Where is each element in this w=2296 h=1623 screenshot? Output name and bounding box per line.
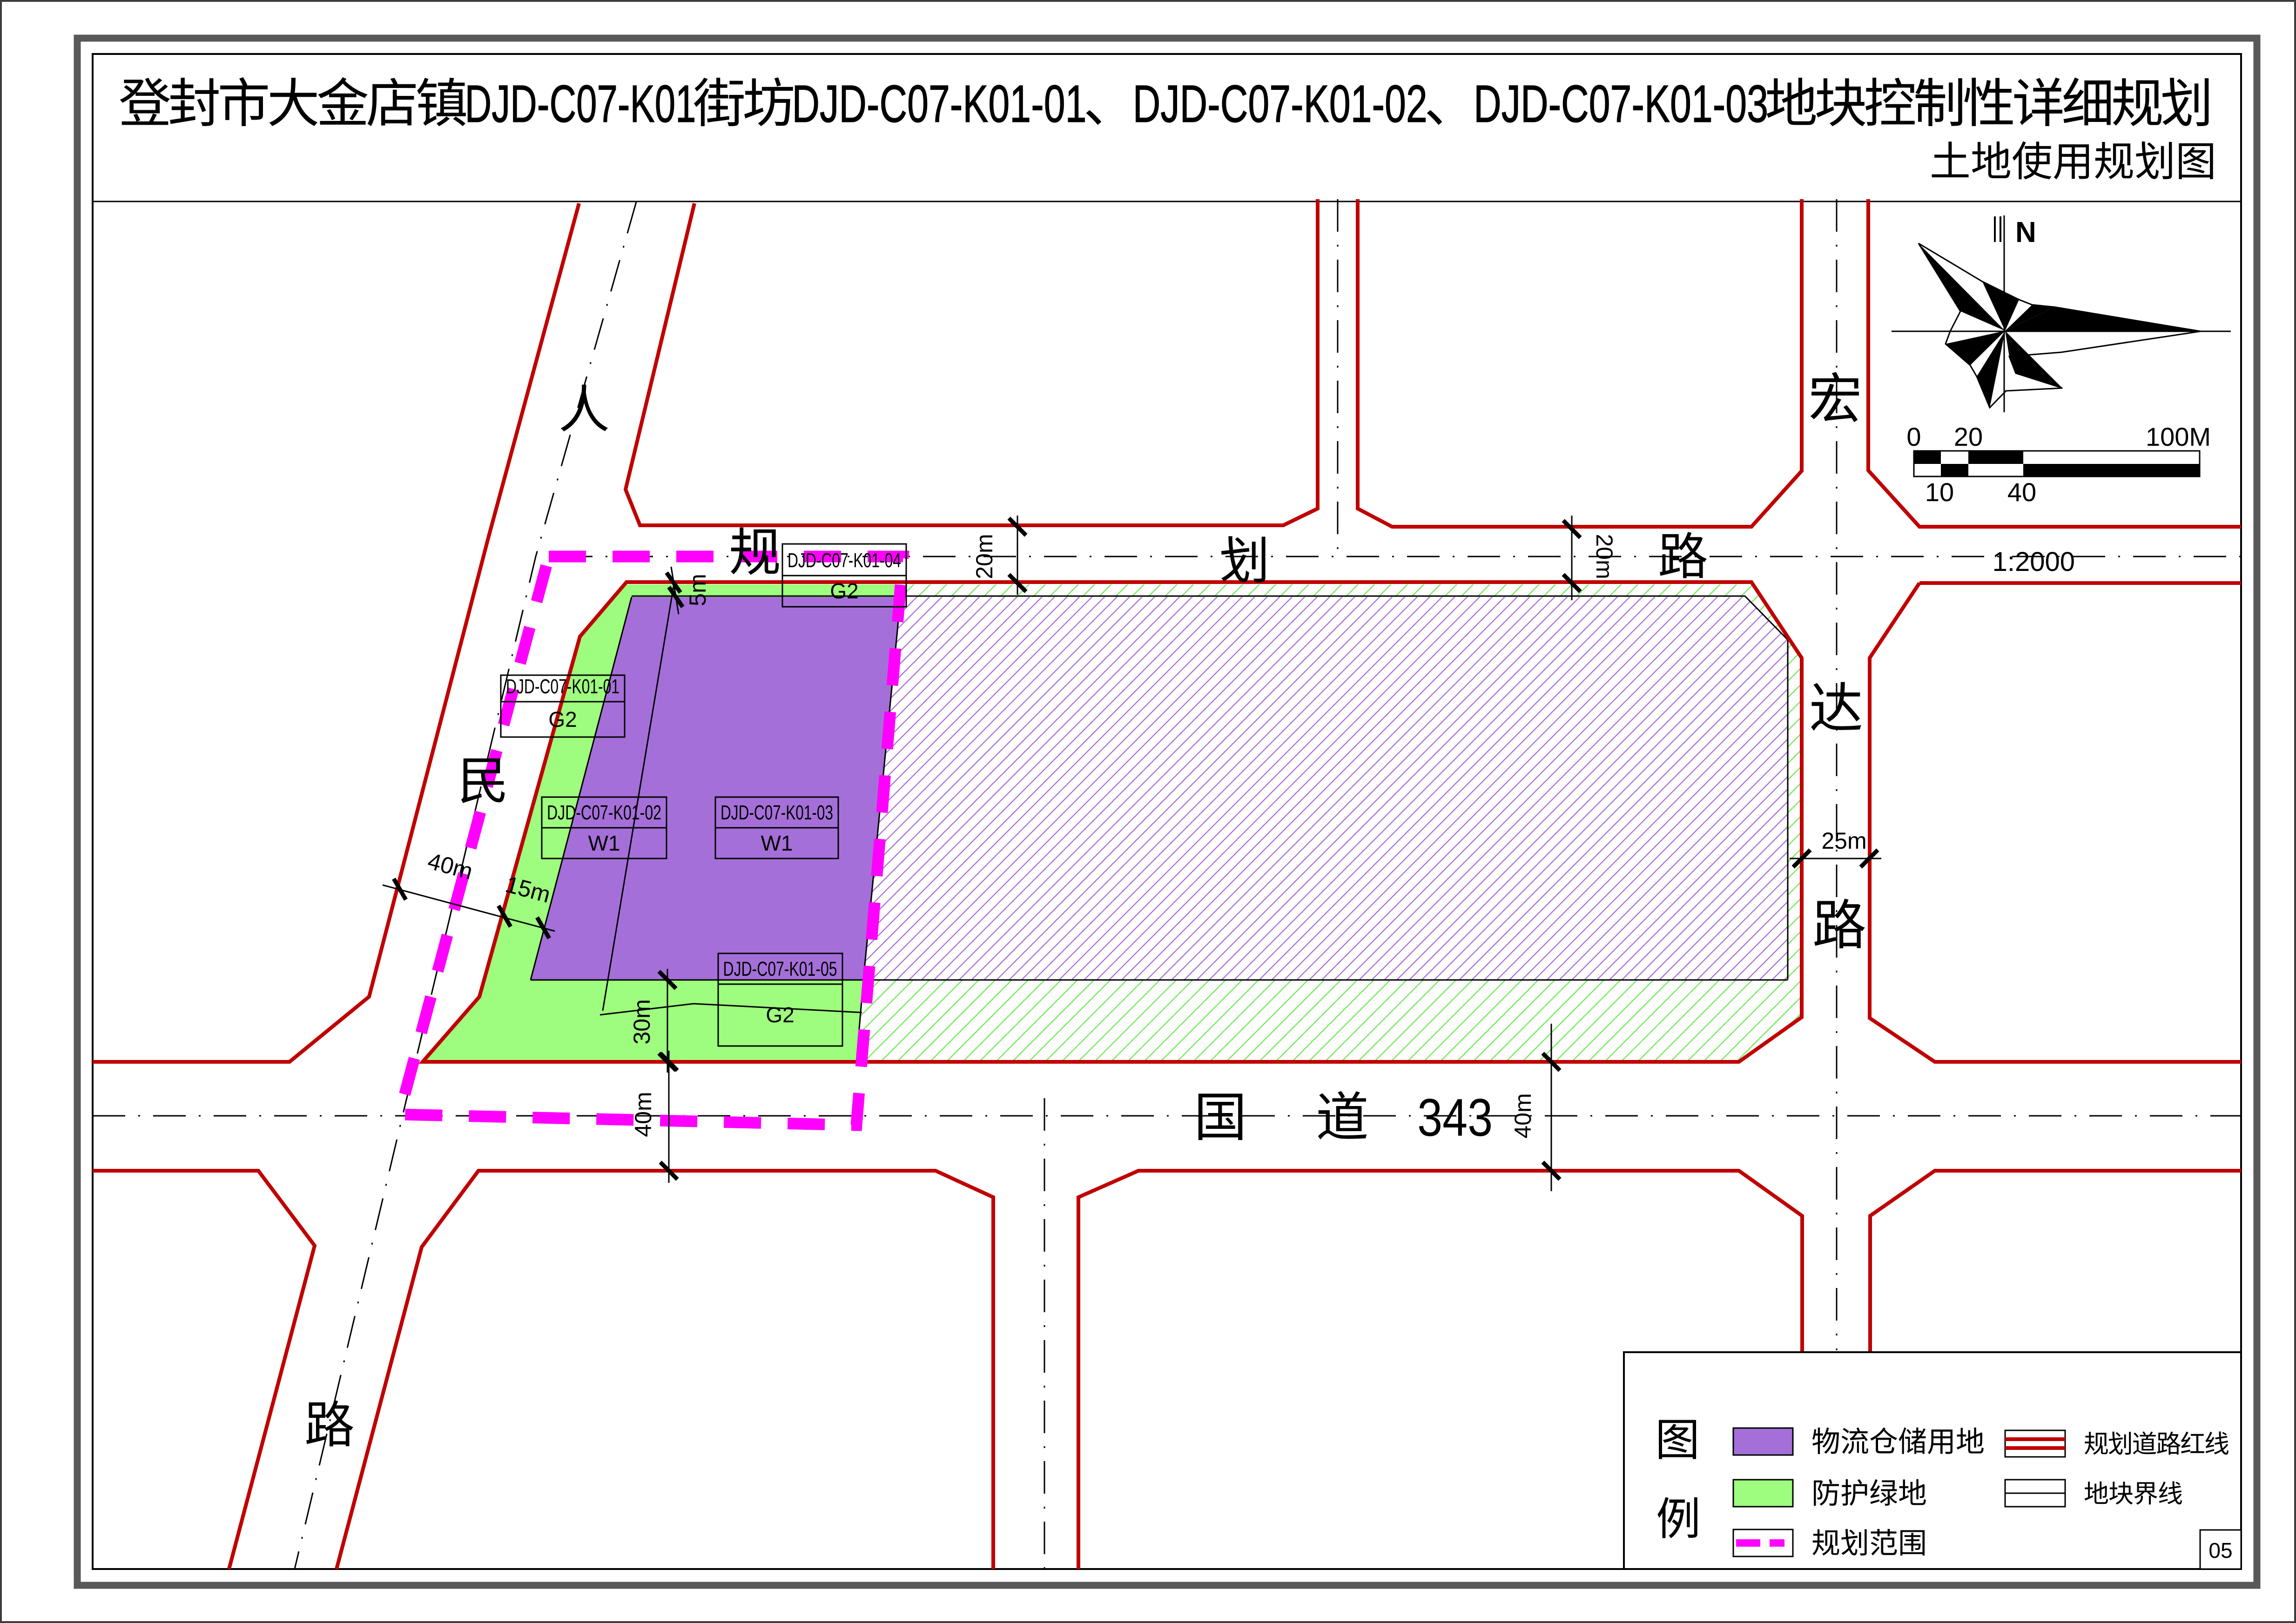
svg-text:25m: 25m xyxy=(1821,828,1866,854)
svg-text:30m: 30m xyxy=(629,999,655,1044)
svg-text:G2: G2 xyxy=(548,707,577,731)
svg-text:40: 40 xyxy=(2007,477,2036,507)
svg-text:DJD-C07-K01-05: DJD-C07-K01-05 xyxy=(723,958,837,980)
svg-text:N: N xyxy=(2015,216,2036,248)
svg-text:5m: 5m xyxy=(685,574,711,606)
svg-text:DJD-C07-K01-01: DJD-C07-K01-01 xyxy=(506,675,619,698)
svg-text:40m: 40m xyxy=(1510,1093,1536,1138)
svg-text:343: 343 xyxy=(1417,1088,1493,1147)
svg-text:DJD-C07-K01: DJD-C07-K01 xyxy=(465,74,696,133)
svg-text:DJD-C07-K01-02: DJD-C07-K01-02 xyxy=(547,801,661,824)
svg-text:DJD-C07-K01-04: DJD-C07-K01-04 xyxy=(788,549,901,572)
svg-text:05: 05 xyxy=(2208,1538,2232,1563)
svg-text:G2: G2 xyxy=(766,1003,794,1027)
svg-text:DJD-C07-K01-02: DJD-C07-K01-02 xyxy=(1133,74,1427,133)
svg-text:1:2000: 1:2000 xyxy=(1993,547,2075,577)
svg-text:20m: 20m xyxy=(971,534,997,579)
svg-text:W1: W1 xyxy=(761,831,793,855)
svg-text:DJD-C07-K01-03: DJD-C07-K01-03 xyxy=(720,801,833,824)
svg-text:0: 0 xyxy=(1906,422,1921,451)
svg-text:20: 20 xyxy=(1954,422,1983,451)
svg-text:W1: W1 xyxy=(588,831,620,855)
svg-text:DJD-C07-K01-01: DJD-C07-K01-01 xyxy=(792,74,1087,133)
svg-text:10: 10 xyxy=(1925,477,1954,507)
svg-text:40m: 40m xyxy=(630,1092,656,1137)
svg-text:DJD-C07-K01-03: DJD-C07-K01-03 xyxy=(1474,74,1768,133)
svg-text:100M: 100M xyxy=(2146,422,2211,451)
svg-text:20m: 20m xyxy=(1591,534,1617,579)
svg-text:G2: G2 xyxy=(830,579,858,603)
